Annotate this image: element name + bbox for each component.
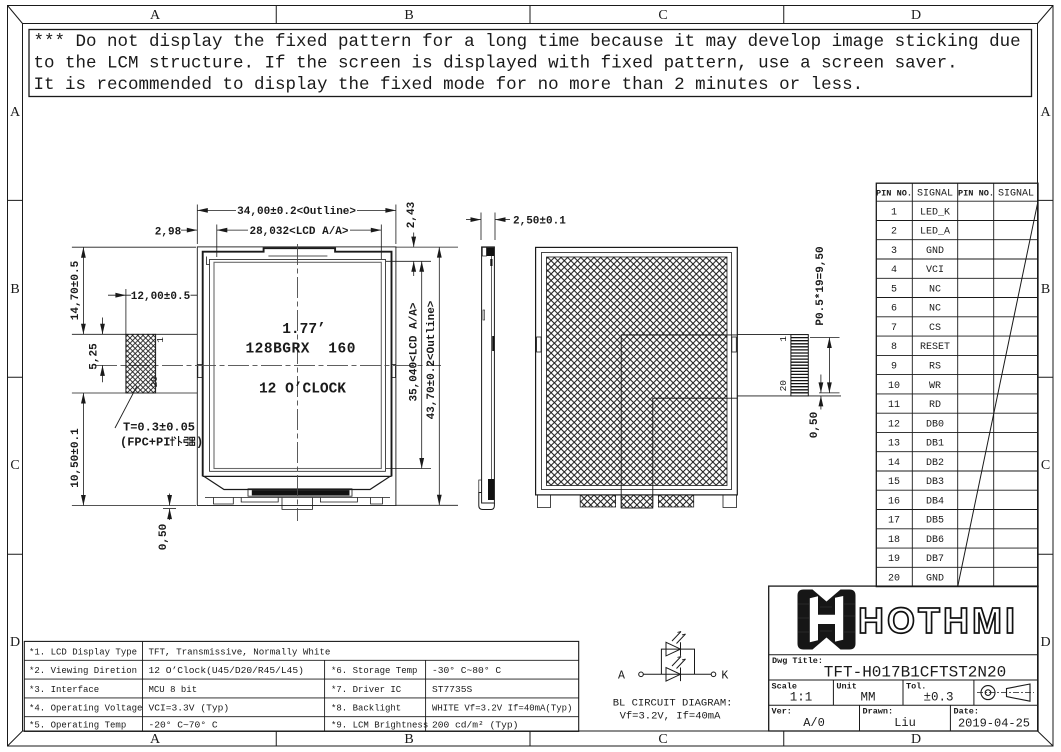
svg-text:*6. Storage Temp: *6. Storage Temp xyxy=(331,666,417,676)
svg-text:Drawn:: Drawn: xyxy=(863,707,894,717)
svg-text:Liu: Liu xyxy=(894,716,916,730)
svg-text:Ver:: Ver: xyxy=(772,707,792,717)
svg-text:10,50±0.1: 10,50±0.1 xyxy=(70,428,82,488)
svg-text:14: 14 xyxy=(888,458,900,469)
svg-text:*1. LCD Display Type: *1. LCD Display Type xyxy=(29,647,137,657)
svg-text:11: 11 xyxy=(888,400,900,411)
svg-text:TFT-H017B1CFTST2N20: TFT-H017B1CFTST2N20 xyxy=(824,664,1006,682)
svg-text:WR: WR xyxy=(929,381,941,392)
svg-text:4: 4 xyxy=(891,265,897,276)
svg-text:28,032<LCD A/A>: 28,032<LCD A/A> xyxy=(249,226,348,238)
svg-text:200 cd/m² (Typ): 200 cd/m² (Typ) xyxy=(432,720,518,731)
svg-text:D: D xyxy=(911,8,921,23)
svg-text:C: C xyxy=(658,732,667,747)
svg-text:DB2: DB2 xyxy=(926,458,944,469)
svg-text:Unit: Unit xyxy=(836,682,856,692)
svg-text:*8. Backlight: *8. Backlight xyxy=(331,704,401,714)
svg-text:20: 20 xyxy=(149,376,160,388)
svg-text:SIGNAL: SIGNAL xyxy=(917,189,953,200)
svg-text:It is recommended to display t: It is recommended to display the fixed m… xyxy=(34,75,864,95)
svg-text:2019-04-25: 2019-04-25 xyxy=(958,717,1030,731)
svg-text:1: 1 xyxy=(778,336,789,342)
svg-text:NC: NC xyxy=(929,284,941,295)
svg-text:LED_K: LED_K xyxy=(920,207,950,218)
svg-text:TFT, Transmissive, Normally Wh: TFT, Transmissive, Normally White xyxy=(149,646,331,657)
svg-text:MCU 8 bit: MCU 8 bit xyxy=(149,685,198,695)
svg-text:PIN NO.: PIN NO. xyxy=(958,188,994,198)
svg-text:1: 1 xyxy=(891,207,897,218)
svg-text:B: B xyxy=(404,8,413,23)
svg-text:): ) xyxy=(196,436,203,450)
svg-text:±0.3: ±0.3 xyxy=(923,691,953,705)
svg-text:3: 3 xyxy=(891,246,897,257)
svg-text:RD: RD xyxy=(929,400,941,411)
svg-text:WHITE Vf=3.2V If=40mA(Typ): WHITE Vf=3.2V If=40mA(Typ) xyxy=(432,704,572,714)
svg-text:14,70±0.5: 14,70±0.5 xyxy=(70,260,82,320)
svg-text:C: C xyxy=(1041,458,1050,473)
svg-text:GND: GND xyxy=(926,574,944,585)
svg-text:Vf=3.2V, If=40mA: Vf=3.2V, If=40mA xyxy=(620,711,722,723)
svg-text:A/0: A/0 xyxy=(803,716,825,730)
svg-text:D: D xyxy=(10,635,20,650)
svg-text:43,70±0.2<Outline>: 43,70±0.2<Outline> xyxy=(426,300,438,419)
svg-text:B: B xyxy=(404,732,413,747)
svg-text:*3. Interface: *3. Interface xyxy=(29,685,99,695)
svg-text:*9. LCM Brightness: *9. LCM Brightness xyxy=(331,721,428,731)
svg-text:Dwg Title:: Dwg Title: xyxy=(772,656,823,666)
svg-text:2: 2 xyxy=(891,227,897,238)
svg-text:T=0.3±0.05: T=0.3±0.05 xyxy=(123,421,195,435)
svg-text:19: 19 xyxy=(888,554,900,565)
svg-text:-20° C~70° C: -20° C~70° C xyxy=(149,720,218,731)
svg-text:C: C xyxy=(658,8,667,23)
svg-text:34,00±0.2<Outline>: 34,00±0.2<Outline> xyxy=(237,206,356,218)
svg-text:*4. Operating Voltage: *4. Operating Voltage xyxy=(29,704,142,714)
svg-text:CS: CS xyxy=(929,323,941,334)
svg-text:0,50: 0,50 xyxy=(809,412,821,438)
svg-text:D: D xyxy=(911,732,921,747)
svg-text:B: B xyxy=(10,282,19,297)
svg-text:DB6: DB6 xyxy=(926,535,944,546)
svg-text:15: 15 xyxy=(888,477,900,488)
svg-text:P0.5*19=9,50: P0.5*19=9,50 xyxy=(815,246,827,325)
svg-text:1:1: 1:1 xyxy=(790,691,813,705)
svg-text:PIN NO.: PIN NO. xyxy=(876,188,912,198)
svg-text:NC: NC xyxy=(929,304,941,315)
svg-text:Date:: Date: xyxy=(954,707,980,717)
svg-text:BL CIRCUIT DIAGRAM:: BL CIRCUIT DIAGRAM: xyxy=(613,698,733,710)
svg-text:DB5: DB5 xyxy=(926,516,944,527)
svg-text:DB4: DB4 xyxy=(926,496,944,507)
svg-text:17: 17 xyxy=(888,516,900,527)
svg-text:8: 8 xyxy=(891,342,897,353)
svg-text:2,50±0.1: 2,50±0.1 xyxy=(513,216,566,228)
svg-text:(FPC+PI: (FPC+PI xyxy=(120,436,170,450)
svg-text:DB3: DB3 xyxy=(926,477,944,488)
svg-text:A: A xyxy=(150,732,161,747)
svg-text:1: 1 xyxy=(155,337,166,343)
svg-text:DB7: DB7 xyxy=(926,554,944,565)
svg-text:to the LCM structure. If the s: to the LCM structure. If the screen is d… xyxy=(34,54,958,74)
svg-text:9: 9 xyxy=(891,362,897,373)
svg-text:7: 7 xyxy=(891,323,897,334)
svg-text:VCI: VCI xyxy=(926,265,944,276)
svg-text:C: C xyxy=(10,458,19,473)
svg-text:A: A xyxy=(10,105,21,120)
svg-text:K: K xyxy=(721,670,728,683)
svg-text:*5. Operating Temp: *5. Operating Temp xyxy=(29,721,126,731)
svg-text:35,040<LCD A/A>: 35,040<LCD A/A> xyxy=(409,302,421,401)
svg-text:D: D xyxy=(1040,635,1050,650)
svg-text:10: 10 xyxy=(888,381,900,392)
svg-text:12,00±0.5: 12,00±0.5 xyxy=(131,291,191,303)
svg-text:16: 16 xyxy=(888,496,900,507)
svg-text:MM: MM xyxy=(860,691,875,705)
svg-text:ST7735S: ST7735S xyxy=(432,684,473,695)
svg-text:6: 6 xyxy=(891,304,897,315)
svg-text:-30° C~80° C: -30° C~80° C xyxy=(432,665,501,676)
svg-text:128BGRX 160: 128BGRX 160 xyxy=(245,342,355,358)
svg-text:RS: RS xyxy=(929,362,941,373)
svg-text:1.77’: 1.77’ xyxy=(282,322,326,338)
svg-text:HOTHMI: HOTHMI xyxy=(858,600,1018,641)
svg-text:GND: GND xyxy=(926,246,944,257)
svg-text:18: 18 xyxy=(888,535,900,546)
svg-text:DB1: DB1 xyxy=(926,439,944,450)
svg-text:12 O’CLOCK: 12 O’CLOCK xyxy=(259,382,346,398)
svg-text:5: 5 xyxy=(891,284,897,295)
svg-text:*7. Driver IC: *7. Driver IC xyxy=(331,685,402,695)
svg-text:5,25: 5,25 xyxy=(89,343,101,370)
svg-text:*** Do not display the fixed p: *** Do not display the fixed pattern for… xyxy=(34,32,1021,52)
svg-text:2,98: 2,98 xyxy=(155,226,182,238)
svg-text:SIGNAL: SIGNAL xyxy=(998,189,1034,200)
svg-text:A: A xyxy=(1040,105,1051,120)
svg-text:12: 12 xyxy=(888,419,900,430)
svg-text:A: A xyxy=(618,670,625,683)
svg-text:VCI=3.3V (Typ): VCI=3.3V (Typ) xyxy=(149,703,230,714)
svg-text:A: A xyxy=(150,8,161,23)
svg-text:0,50: 0,50 xyxy=(158,524,170,550)
svg-text:12 O’Clock(U45/D20/R45/L45): 12 O’Clock(U45/D20/R45/L45) xyxy=(149,665,304,676)
svg-text:2,43: 2,43 xyxy=(406,201,418,228)
svg-text:13: 13 xyxy=(888,439,900,450)
svg-text:LED_A: LED_A xyxy=(920,227,950,238)
svg-text:RESET: RESET xyxy=(920,342,950,353)
svg-text:*2. Viewing Diretion: *2. Viewing Diretion xyxy=(29,666,137,676)
svg-text:20: 20 xyxy=(778,380,789,392)
svg-text:B: B xyxy=(1041,282,1050,297)
svg-text:DB0: DB0 xyxy=(926,419,944,430)
svg-text:20: 20 xyxy=(888,574,900,585)
